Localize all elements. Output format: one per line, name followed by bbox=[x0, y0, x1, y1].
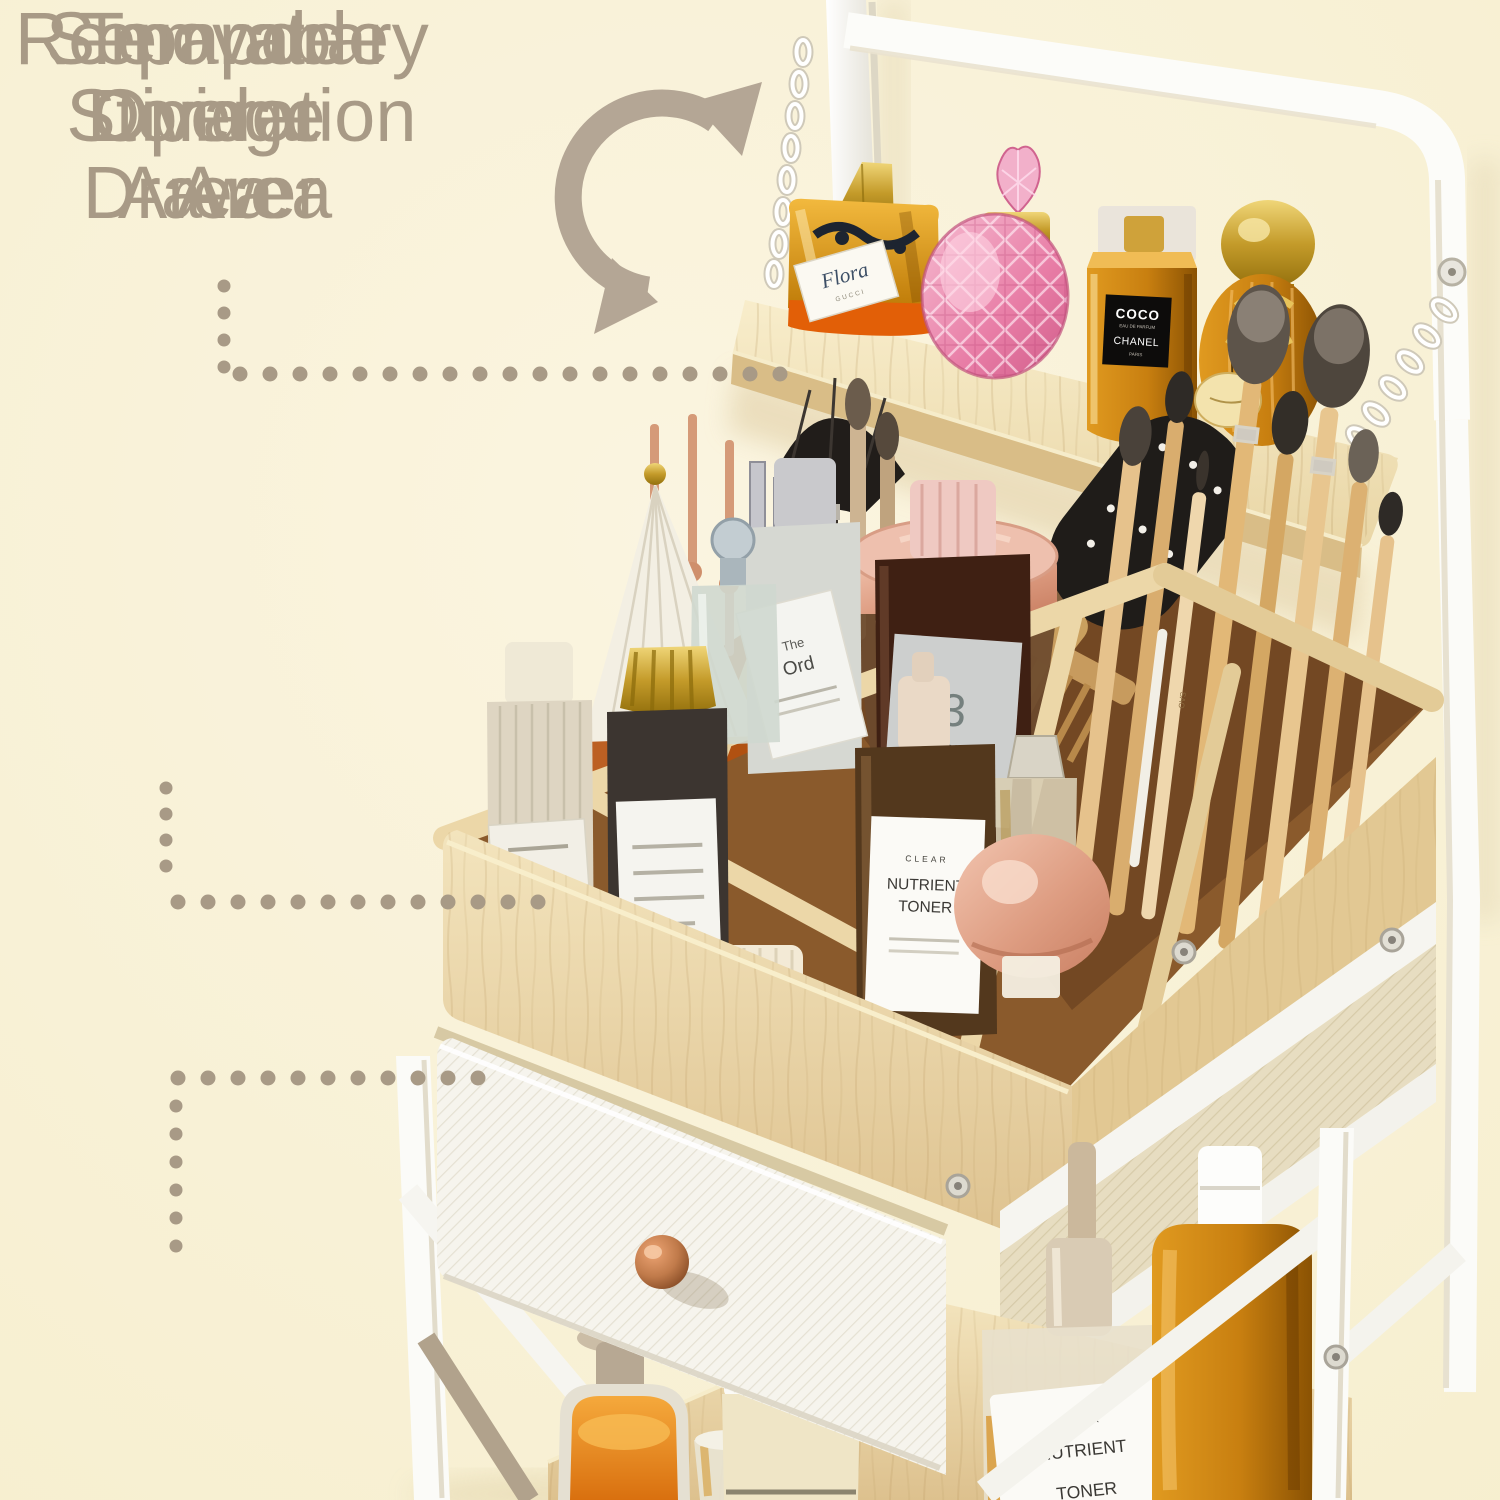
toner-pump-line1: CLEAR bbox=[905, 853, 949, 865]
coco-label: COCO EAU DE PARFUM CHANEL PARIS bbox=[1102, 294, 1172, 367]
label-line: Divider bbox=[0, 77, 404, 154]
label-line: Removable bbox=[0, 0, 404, 77]
toner-pump-line3: TONER bbox=[898, 898, 953, 917]
toner-pump-line2: NUTRIENT bbox=[887, 876, 966, 896]
frame-right-rail bbox=[1452, 420, 1464, 1392]
drawer-knob bbox=[635, 1235, 689, 1289]
label-removable-divider-drawer: Removable Divider Drawer bbox=[0, 0, 404, 231]
coco-label-line4: PARIS bbox=[1129, 352, 1143, 358]
product-infographic: Flora GUCCI COCO EAU DE PARFUM CHANEL PA… bbox=[0, 0, 1500, 1500]
coco-label-line1: COCO bbox=[1115, 306, 1160, 323]
coco-label-line3: CHANEL bbox=[1113, 335, 1159, 349]
label-line: Drawer bbox=[0, 154, 404, 231]
